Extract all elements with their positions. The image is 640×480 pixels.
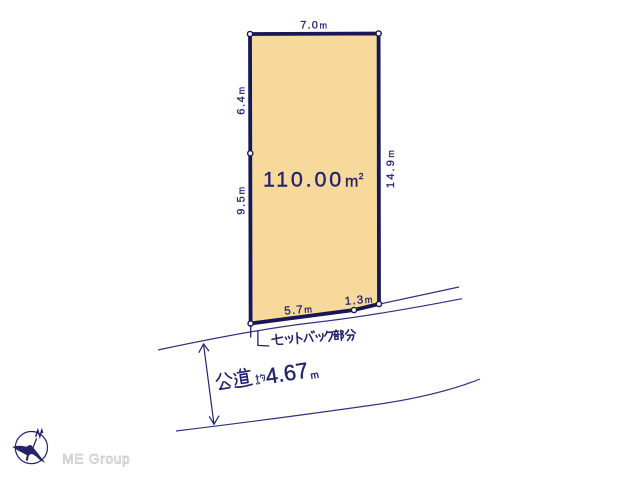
svg-text:9.5m: 9.5m xyxy=(235,185,247,215)
svg-text:7.0m: 7.0m xyxy=(300,19,328,31)
svg-text:4.67m: 4.67m xyxy=(264,356,320,389)
svg-text:ME Group: ME Group xyxy=(63,452,131,467)
svg-text:14.9m: 14.9m xyxy=(385,148,397,188)
svg-text:6.4m: 6.4m xyxy=(235,85,247,115)
